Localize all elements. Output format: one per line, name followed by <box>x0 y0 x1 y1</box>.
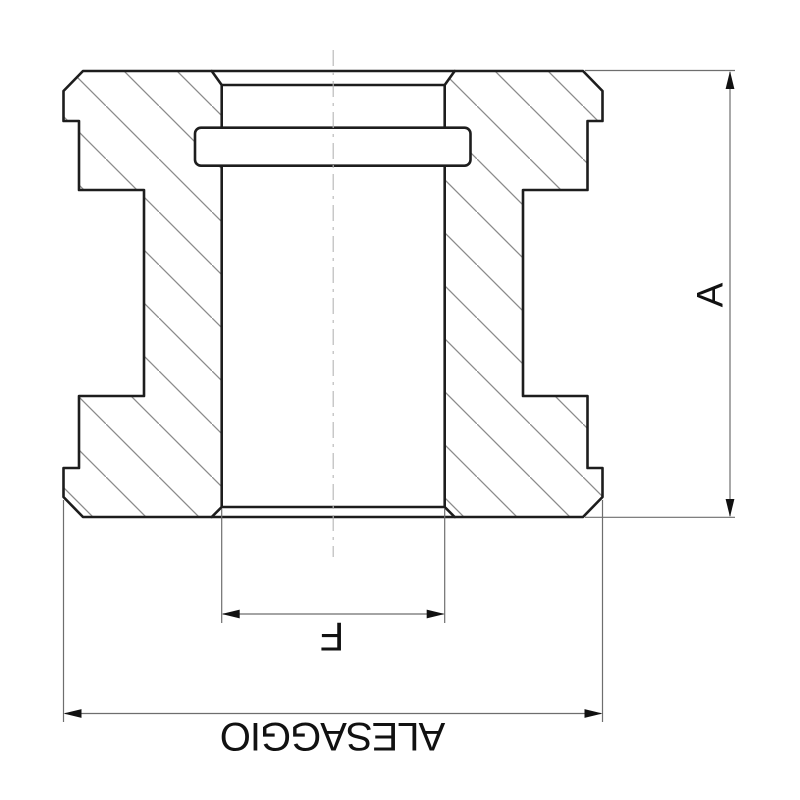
label-overall-width-alesaggio: ALESAGGIO <box>221 714 445 758</box>
technical-drawing: A F ALESAGGIO <box>0 0 800 800</box>
label-height-A: A <box>690 282 731 307</box>
label-bore-F: F <box>320 614 344 658</box>
